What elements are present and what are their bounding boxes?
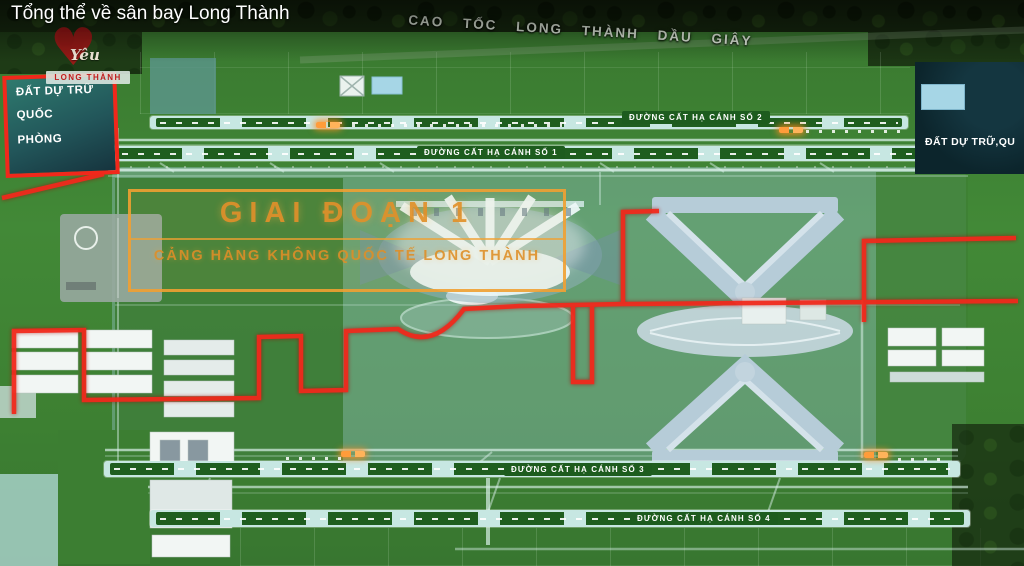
distance-marker xyxy=(316,122,340,128)
video-frame: ĐƯỜNG CẤT HẠ CÁNH SỐ 1 ĐƯỜNG CẤT HẠ CÁNH… xyxy=(0,0,1024,566)
light-dots-row xyxy=(898,458,950,461)
left-reserve-line2: QUỐC xyxy=(16,108,53,121)
phase1-divider xyxy=(131,238,563,240)
taxiway-lights-row xyxy=(130,166,950,168)
light-dots-row xyxy=(286,457,342,460)
left-reserve-line3: PHÒNG xyxy=(17,133,62,147)
blue-field-rect xyxy=(921,84,965,110)
video-title[interactable]: Tổng thể về sân bay Long Thành xyxy=(11,3,290,25)
runway-3-label: ĐƯỜNG CẤT HẠ CÁNH SỐ 3 xyxy=(504,463,652,476)
distance-marker xyxy=(341,451,365,457)
watermark-banner-text: LONG THÀNH xyxy=(46,71,130,84)
runway-4-strip xyxy=(150,510,970,527)
runway-2-label: ĐƯỜNG CẤT HẠ CÁNH SỐ 2 xyxy=(622,111,770,124)
phase1-box: GIAI ĐOẠN 1 CẢNG HÀNG KHÔNG QUỐC TẾ LONG… xyxy=(128,189,566,292)
runway-4-label: ĐƯỜNG CẤT HẠ CÁNH SỐ 4 xyxy=(630,512,778,525)
light-dots-row xyxy=(352,124,562,127)
right-reserve-panel: ĐẤT DỰ TRỮ,QU xyxy=(915,62,1024,174)
runway-1-label: ĐƯỜNG CẤT HẠ CÁNH SỐ 1 xyxy=(417,146,565,159)
phase1-subtitle: CẢNG HÀNG KHÔNG QUỐC TẾ LONG THÀNH xyxy=(131,248,563,264)
right-reserve-label: ĐẤT DỰ TRỮ,QU xyxy=(925,136,1015,148)
map-icons xyxy=(340,76,402,96)
phase1-title: GIAI ĐOẠN 1 xyxy=(131,197,563,230)
distance-marker xyxy=(864,452,888,458)
light-dots-row xyxy=(806,130,906,133)
terminal-2-3-complex xyxy=(637,197,853,466)
distance-marker xyxy=(779,127,803,133)
